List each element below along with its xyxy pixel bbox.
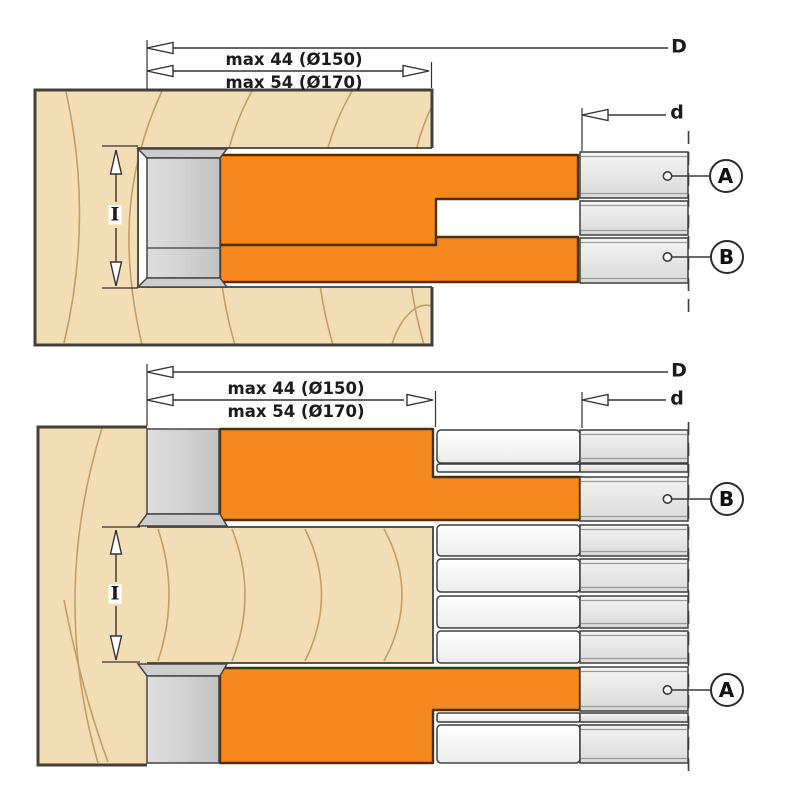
leader-dot bbox=[663, 253, 671, 261]
hub-flange-upper bbox=[138, 514, 227, 526]
knife-strips bbox=[580, 430, 688, 763]
dim-label-I: I bbox=[109, 206, 122, 225]
dim-label-D: D bbox=[671, 362, 687, 381]
hub-flange-lower bbox=[138, 664, 227, 676]
arrowhead-left bbox=[147, 43, 173, 54]
cutter-body-upper bbox=[220, 155, 578, 245]
arrowhead-left bbox=[147, 66, 173, 77]
hub-flange-top bbox=[138, 149, 227, 158]
grooving-cutter-technical-diagram: D max 44 (Ø150) max 54 (Ø170) d I A B D … bbox=[0, 0, 800, 800]
bottom-diagram bbox=[38, 364, 710, 777]
dimension-d bbox=[582, 108, 666, 151]
max-diameter-row2: max 54 (Ø170) bbox=[228, 404, 365, 421]
dim-label-I: I bbox=[109, 585, 122, 604]
callout-A-badge: A bbox=[709, 159, 743, 193]
dimension-d bbox=[582, 392, 666, 428]
hub-flange-bottom bbox=[138, 278, 227, 287]
leader-dot bbox=[663, 495, 671, 503]
top-diagram bbox=[35, 40, 710, 345]
arrowhead-right bbox=[407, 395, 433, 406]
leader-dot bbox=[663, 172, 671, 180]
dim-label-d: d bbox=[670, 104, 684, 123]
hub-body bbox=[147, 158, 220, 278]
arrowhead-left bbox=[147, 367, 173, 378]
arrowhead-left bbox=[582, 395, 608, 406]
max-diameter-row1: max 44 (Ø150) bbox=[226, 52, 363, 69]
leader-dot bbox=[663, 686, 671, 694]
knife-strips bbox=[580, 152, 688, 283]
max-diameter-row2: max 54 (Ø170) bbox=[226, 75, 363, 92]
callout-A-badge: A bbox=[710, 673, 744, 707]
dim-label-d: d bbox=[670, 390, 684, 409]
callout-B-badge: B bbox=[710, 240, 744, 274]
max-diameter-row1: max 44 (Ø150) bbox=[228, 381, 365, 398]
arrowhead-left bbox=[582, 110, 608, 121]
hub-body-upper bbox=[147, 429, 219, 514]
arrowhead-right bbox=[403, 66, 429, 77]
callout-B-badge: B bbox=[710, 482, 744, 516]
dim-label-D: D bbox=[671, 38, 687, 57]
arrowhead-left bbox=[147, 395, 173, 406]
hub-body-lower bbox=[147, 676, 219, 763]
